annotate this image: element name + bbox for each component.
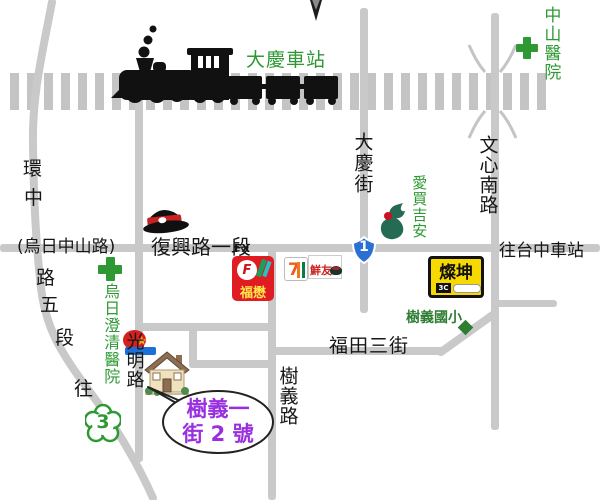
tsannkuen-pill-icon — [453, 284, 481, 293]
fumao-circle-logo-icon: F — [237, 260, 257, 280]
route-3-number: 3 — [85, 412, 121, 432]
callout-line2: 街 2 號 — [172, 423, 264, 445]
tsannkuen-sign: 燦坤 3C — [428, 256, 484, 298]
fumao-name: 福懋 — [232, 283, 274, 299]
hotpot-soup-icon — [332, 267, 340, 270]
fumao-sign: F 福懋 — [232, 256, 274, 301]
huanzhong-char-1: 環 — [23, 159, 42, 180]
xianyou-sign: 鮮友 — [308, 255, 342, 279]
seven-eleven-green-stripe-icon — [302, 262, 305, 278]
wuri-hospital-green-cross-icon — [98, 257, 122, 281]
fuxing-road-label: 復興路一段 — [151, 237, 251, 259]
zhongshan-hospital-label: 中山醫院 — [541, 6, 559, 82]
route-1-number: 1 — [351, 240, 377, 256]
station-master-cap-icon — [137, 196, 190, 237]
seven-eleven-orange-stripe-icon — [297, 262, 300, 278]
huanzhong-char-3: 路 — [36, 268, 55, 289]
huanzhong-char-2: 中 — [24, 188, 43, 209]
huanzhong-toward-label: 往 — [74, 379, 93, 400]
tsannkuen-name: 燦坤 — [431, 261, 481, 279]
daqing-street-label: 大慶街 — [352, 132, 373, 195]
wenxin-south-label: 文心南路 — [477, 135, 498, 215]
huanzhong-char-5: 段 — [55, 328, 74, 349]
seven-eleven-sign: 7 — [284, 257, 308, 281]
wuri-hospital-label: 烏日澄清醫院 — [102, 283, 119, 385]
station-label: 大慶車站 — [246, 50, 326, 71]
school-label: 樹義國小 — [406, 311, 462, 326]
to-taichung-station-label: 往台中車站 — [499, 242, 584, 260]
callout-line1: 樹義一 — [176, 398, 260, 420]
zhongshan-hospital-green-cross-icon — [516, 37, 538, 59]
xianyou-name: 鮮友 — [310, 262, 332, 278]
guangming-road-label: 光明路 — [124, 332, 143, 389]
wuri-zhongshan-road-label: (烏日中山路) — [17, 238, 115, 256]
railway-crossing-flares — [469, 45, 516, 138]
huanzhong-char-4: 五 — [40, 295, 59, 316]
hand-drawn-location-map: FX F 福懋 7 鮮友 1 燦坤 3C ★ — [0, 0, 600, 500]
futian-3rd-street-label: 福田三街 — [329, 336, 409, 357]
shuyi-road-label: 樹義路 — [277, 366, 298, 426]
aimai-logo-icon — [377, 199, 413, 243]
tsannkuen-3c-badge: 3C — [436, 283, 451, 293]
aimai-label: 愛買吉安 — [411, 175, 427, 239]
